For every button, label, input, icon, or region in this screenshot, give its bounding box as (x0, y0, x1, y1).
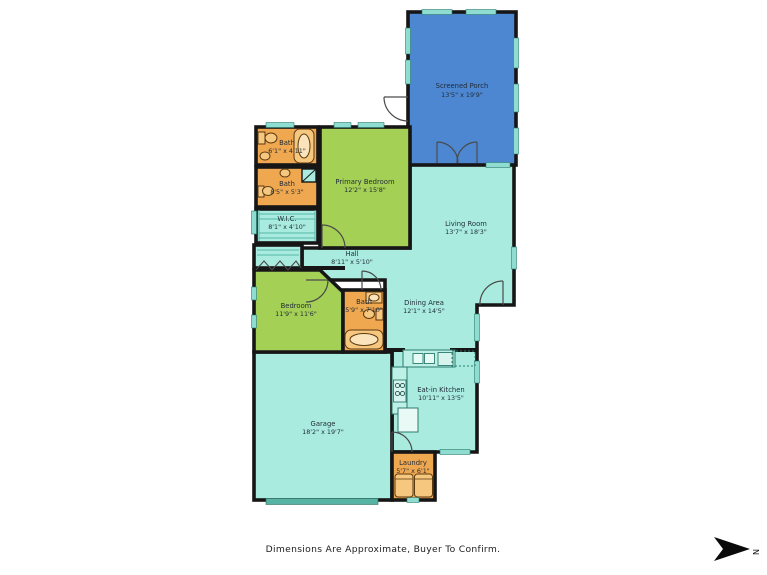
dims-primary-bedroom: 12'2" x 15'8" (344, 186, 386, 194)
dims-bath-upper: 6'1" x 4'11" (268, 147, 306, 155)
garage-door (266, 499, 378, 505)
dims-bath-hall: 5'9" x 7'10" (345, 306, 383, 314)
label-garage: Garage (311, 420, 336, 428)
label-bedroom: Bedroom (281, 302, 312, 310)
label-eat-in-kitchen: Eat-in Kitchen (417, 386, 464, 394)
disclaimer-text: Dimensions Are Approximate, Buyer To Con… (266, 544, 501, 555)
label-bath-primary: Bath (279, 180, 295, 188)
label-hall: Hall (345, 250, 358, 258)
dims-bath-primary: 8'5" x 5'3" (270, 188, 304, 196)
bath-closet-notch (302, 169, 316, 182)
north-arrow-icon (714, 537, 750, 561)
label-screened-porch: Screened Porch (436, 82, 489, 90)
label-bath-hall: Bath (356, 298, 372, 306)
label-bath-upper: Bath (279, 139, 295, 147)
dims-hall: 8'11" x 5'10" (331, 258, 373, 266)
dims-garage: 18'2" x 19'7" (302, 428, 344, 436)
label-primary-bedroom: Primary Bedroom (335, 178, 395, 186)
dims-living-room: 13'7" x 18'3" (445, 228, 487, 236)
north-label: N (751, 549, 760, 555)
floor-plan-page: Screened Porch 13'5" x 19'9" Bath 6'1" x… (0, 0, 767, 575)
dims-wic: 8'1" x 4'10" (268, 223, 306, 231)
dims-dining-area: 12'1" x 14'5" (403, 307, 445, 315)
label-wic: W.I.C. (277, 215, 296, 223)
label-dining-area: Dining Area (404, 299, 444, 307)
label-living-room: Living Room (445, 220, 487, 228)
dims-screened-porch: 13'5" x 19'9" (441, 91, 483, 99)
dims-bedroom: 11'9" x 11'6" (275, 310, 317, 318)
dims-eat-in-kitchen: 10'11" x 13'5" (418, 394, 464, 402)
north-arrow: N (714, 537, 760, 561)
label-laundry: Laundry (399, 459, 427, 467)
dims-laundry: 5'7" x 6'1" (396, 467, 430, 475)
floor-plan-canvas: Screened Porch 13'5" x 19'9" Bath 6'1" x… (0, 0, 767, 575)
